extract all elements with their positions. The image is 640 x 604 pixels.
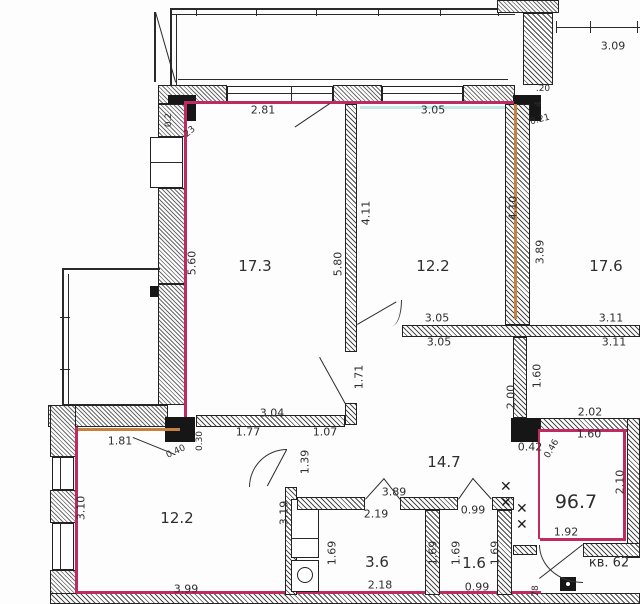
neighbor-wall-block: [497, 0, 559, 13]
dim-1-69-c: 1.69: [450, 541, 463, 566]
left-loggia-tick: [60, 317, 70, 318]
dim-3-99: 3.99: [174, 583, 199, 596]
dim-5-60: 5.60: [186, 251, 199, 276]
dim-2-18: 2.18: [368, 579, 393, 592]
room-area-12-2-bottom: 12.2: [160, 509, 193, 527]
dim-1-07: 1.07: [313, 426, 338, 439]
wall-bath-top-right: [400, 497, 458, 510]
dim-5-80: 5.80: [332, 252, 345, 277]
wall-17-3-east-stub: [345, 403, 357, 425]
window-glass-line: [60, 457, 61, 490]
balcony-rail-outer: [170, 8, 515, 10]
door-17-3-leaf: [319, 357, 346, 404]
room-area-12-2-top: 12.2: [416, 257, 449, 275]
shaft-x-icon: ✕: [516, 502, 528, 516]
dim-0-4: 4: [534, 101, 544, 107]
dim-1-60-h: 1.60: [577, 428, 602, 441]
window-glass-line: [227, 93, 333, 94]
window-west-lower-1: [52, 457, 74, 490]
dim-1-92: 1.92: [554, 526, 579, 539]
dim-0-46: 0.46: [543, 438, 562, 460]
dim-2-10: 2.10: [614, 470, 627, 495]
room-area-14-7: 14.7: [427, 453, 460, 471]
dim-2-02: 2.02: [578, 406, 603, 419]
dim-2-00: 2.00: [505, 385, 518, 410]
floor-plan: ✕ ✕ ✕ ✕ 17.312.217.614.712.23.61.696.7кв…: [0, 0, 640, 604]
dim-tick: [637, 21, 638, 33]
dim-1-39: 1.39: [299, 450, 312, 475]
left-loggia-top: [62, 268, 160, 270]
door-wc-leaf: [472, 478, 491, 499]
dim-0-99-b: 0.99: [465, 581, 490, 594]
threshold-dot: [566, 582, 570, 586]
balcony-mullion-tick: [378, 8, 379, 16]
dim-3-19: 3.19: [278, 501, 291, 526]
dim-1-69-b: 1.69: [427, 541, 440, 566]
dim-3-10: 3.10: [75, 496, 88, 521]
door-balcony-leaf: [295, 103, 330, 127]
left-loggia-rail: [62, 268, 64, 406]
window-glass-line: [382, 93, 463, 94]
window-mullion: [291, 86, 292, 102]
window-north-1: [227, 86, 333, 102]
wall-96-7-right: [627, 418, 640, 558]
west-wall-lower-segment: [50, 490, 76, 523]
room-area-17-3: 17.3: [238, 257, 271, 275]
dim-2-19: 2.19: [364, 508, 389, 521]
shaft-x-icon: ✕: [500, 496, 512, 510]
room-area-1-6: 1.6: [462, 554, 486, 572]
balcony-mullion-tick: [316, 8, 317, 16]
balcony-mullion-tick: [196, 8, 197, 16]
dim-tick: [590, 21, 591, 33]
dim-3-09: 3.09: [601, 40, 626, 53]
dim-2-81: 2.81: [251, 104, 276, 117]
dim-3-05-mid-a: 3.05: [425, 312, 450, 325]
balcony-strut: [155, 12, 176, 82]
dim-1-69-a: 1.69: [326, 541, 339, 566]
wall-bath-top-left: [297, 497, 365, 510]
dim-0-2: 0.2: [164, 113, 174, 127]
balcony-side-left-inner: [176, 14, 177, 88]
balcony-mullion-tick: [440, 8, 441, 16]
dim-0-30: 0.30: [195, 431, 205, 451]
dim-line-3-09: [556, 27, 640, 28]
dim-0-42: 0.42: [518, 441, 543, 454]
dim-3-05-mid-b: 3.05: [427, 336, 452, 349]
window-glass-line: [150, 162, 183, 163]
balcony-mullion-tick: [256, 8, 257, 16]
dim-1-60-v: 1.60: [531, 364, 544, 389]
west-wall-segment: [158, 188, 185, 284]
dim-3-89-h: 3.89: [382, 486, 407, 499]
door-12-2-top-leaf: [357, 302, 396, 325]
dim-3-05-top: 3.05: [421, 104, 446, 117]
dim-3-11-b: 3.11: [602, 336, 627, 349]
dim-tick: [556, 21, 557, 33]
room-area-3-6: 3.6: [365, 553, 389, 571]
dim-0-20: .20: [536, 84, 550, 94]
dim-1-77: 1.77: [236, 426, 261, 439]
entry-door-arc: [539, 545, 583, 583]
west-wall-segment: [158, 284, 185, 405]
cabinet-divider: [291, 538, 319, 539]
window-north-2: [382, 86, 463, 102]
apartment-number: кв. 62: [589, 556, 629, 571]
balcony-divider-stub: [154, 12, 156, 82]
west-wall-lower-segment: [50, 405, 76, 457]
dim-0-40: 0.40: [165, 443, 187, 461]
wall-shaft-bottom: [513, 545, 537, 555]
left-loggia-rail-inner: [68, 274, 69, 404]
dim-3-04: 3.04: [260, 407, 285, 420]
door-wc-leaf: [458, 478, 474, 500]
dim-4-10: 4.10: [507, 196, 520, 221]
south-wall: [50, 593, 640, 604]
balcony-sill: [178, 79, 508, 80]
dim-78: 78: [531, 585, 541, 596]
shaft-x-icon: ✕: [500, 480, 512, 494]
room-area-17-6: 17.6: [589, 257, 622, 275]
left-loggia-tick: [60, 369, 70, 370]
dim-1-71: 1.71: [353, 365, 366, 390]
door-12-2-top-arc: [392, 300, 402, 326]
wall-17-3-east: [345, 104, 357, 352]
column-mid-right: [511, 418, 540, 442]
accent-line-12-2-top: [78, 428, 180, 431]
window-glass-line: [60, 523, 61, 570]
dim-1-69-d: 1.69: [489, 541, 502, 566]
shaft-x-icon: ✕: [516, 518, 528, 532]
balcony-side-left: [170, 8, 172, 88]
dim-1-81: 1.81: [108, 435, 133, 448]
dim-0-99-a: 0.99: [461, 504, 486, 517]
dim-3-89-v: 3.89: [534, 240, 547, 265]
neighbor-wall-vertical: [523, 13, 553, 85]
window-west-lower-2: [52, 523, 74, 570]
balcony-rail-inner: [170, 14, 515, 15]
dim-4-11: 4.11: [360, 201, 373, 226]
appliance-circle-icon: [297, 567, 313, 583]
dim-3-11-a: 3.11: [599, 312, 624, 325]
total-area-96-7: 96.7: [555, 491, 597, 513]
